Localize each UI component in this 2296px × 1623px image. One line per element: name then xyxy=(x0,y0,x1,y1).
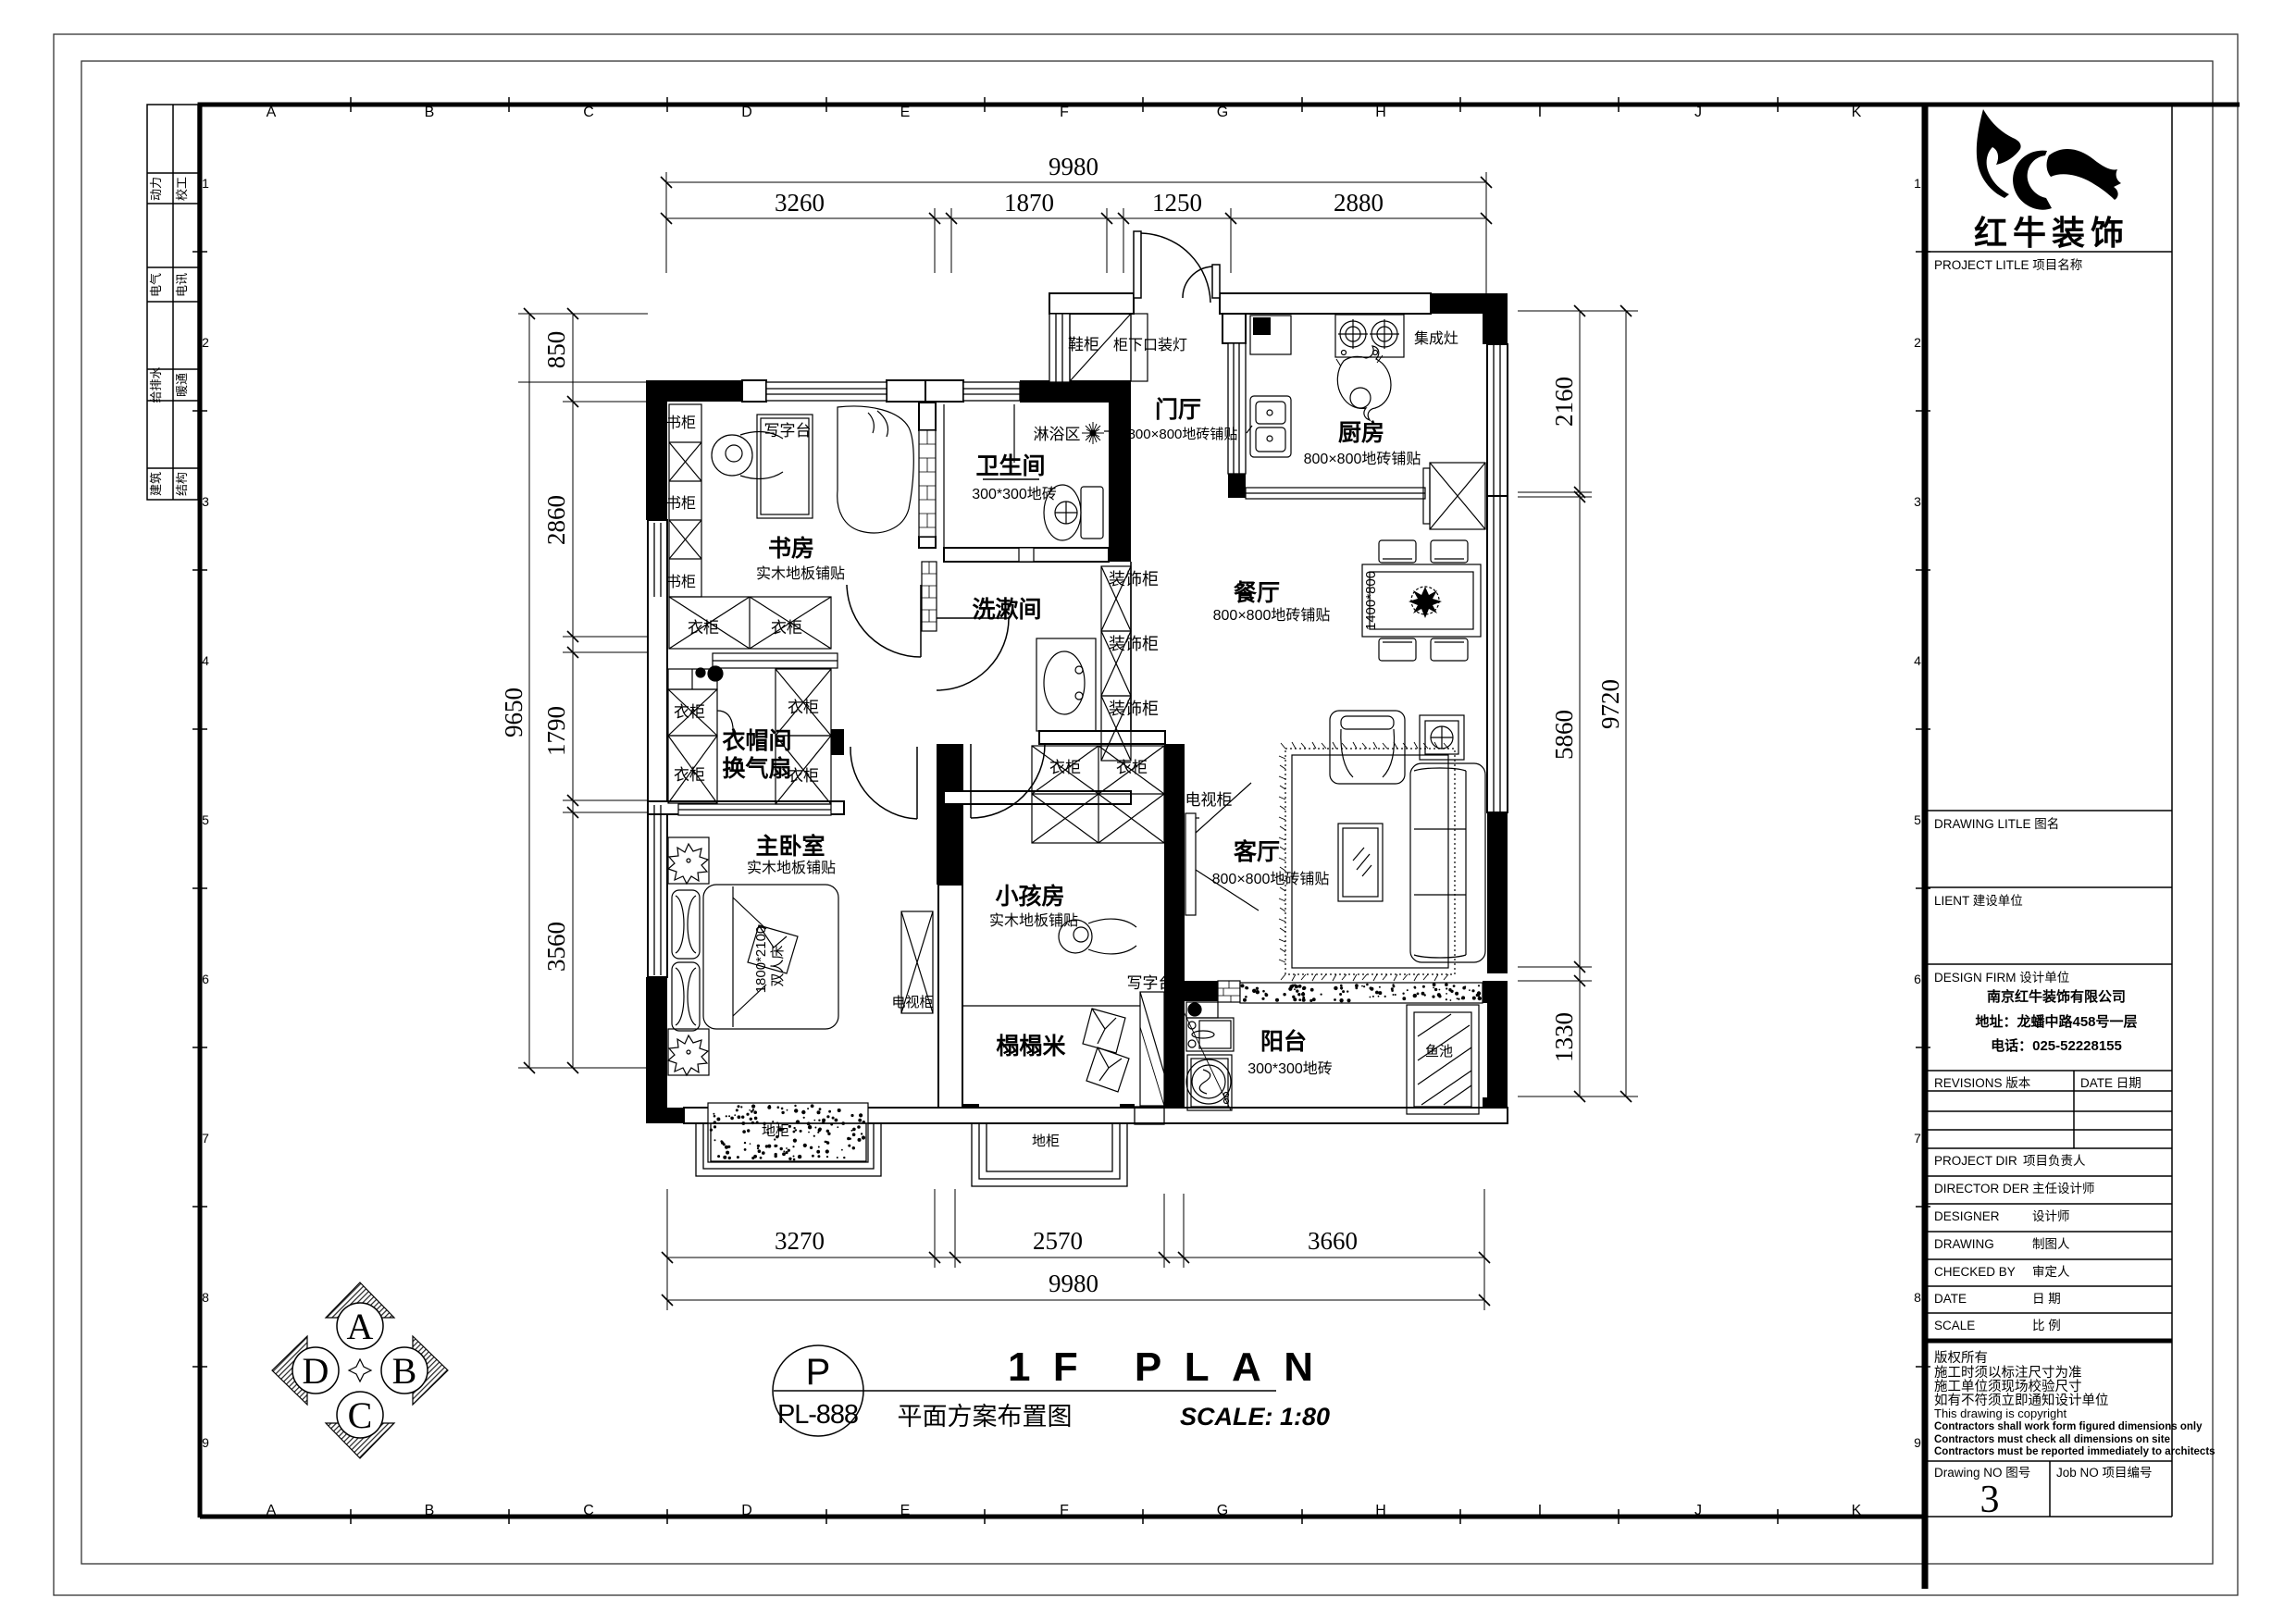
svg-text:800×800地砖铺贴: 800×800地砖铺贴 xyxy=(1128,427,1238,442)
svg-text:1790: 1790 xyxy=(542,706,570,756)
svg-text:CHECKED BY: CHECKED BY xyxy=(1934,1265,2016,1279)
svg-text:D: D xyxy=(741,105,752,120)
svg-text:DATE 日期: DATE 日期 xyxy=(2080,1076,2141,1090)
svg-text:800×800地砖铺贴: 800×800地砖铺贴 xyxy=(1213,607,1331,624)
svg-text:地址：龙蟠中路458号一层: 地址：龙蟠中路458号一层 xyxy=(1975,1013,2137,1030)
svg-text:主卧室: 主卧室 xyxy=(755,833,825,860)
svg-text:Contractors must check all dim: Contractors must check all dimensions on… xyxy=(1934,1434,2170,1445)
svg-text:南京红牛装饰有限公司: 南京红牛装饰有限公司 xyxy=(1987,988,2126,1005)
svg-text:C: C xyxy=(348,1394,373,1436)
svg-text:Contractors shall work form fi: Contractors shall work form figured dime… xyxy=(1934,1421,2203,1432)
svg-text:8: 8 xyxy=(1914,1290,1921,1305)
svg-text:1: 1 xyxy=(202,176,209,191)
svg-text:柜下口装灯: 柜下口装灯 xyxy=(1113,337,1187,353)
svg-text:书柜: 书柜 xyxy=(666,574,696,590)
svg-text:5: 5 xyxy=(1914,812,1921,827)
svg-text:F: F xyxy=(1060,105,1069,120)
svg-text:3: 3 xyxy=(1914,494,1921,509)
svg-text:施工时须以标注尺寸为准: 施工时须以标注尺寸为准 xyxy=(1934,1365,2082,1381)
svg-text:小孩房: 小孩房 xyxy=(995,883,1064,910)
svg-text:淋浴区: 淋浴区 xyxy=(1034,426,1081,443)
svg-text:SCALE: 1:80: SCALE: 1:80 xyxy=(1180,1403,1330,1431)
svg-text:300*300地砖: 300*300地砖 xyxy=(1247,1060,1333,1077)
svg-text:DATE: DATE xyxy=(1934,1292,1967,1306)
svg-text:DRAWING: DRAWING xyxy=(1934,1237,1994,1251)
svg-text:双人床: 双人床 xyxy=(770,945,786,986)
svg-text:厨房: 厨房 xyxy=(1338,419,1384,446)
svg-text:装饰柜: 装饰柜 xyxy=(1109,635,1159,653)
svg-text:动力: 动力 xyxy=(149,177,163,201)
svg-text:洗漱间: 洗漱间 xyxy=(972,597,1041,623)
svg-text:衣帽间: 衣帽间 xyxy=(722,727,791,754)
svg-text:鞋柜: 鞋柜 xyxy=(1068,336,1099,353)
svg-text:Contractors must be reported i: Contractors must be reported immediately… xyxy=(1934,1446,2215,1457)
svg-text:电视柜: 电视柜 xyxy=(891,995,933,1010)
svg-text:G: G xyxy=(1217,105,1228,120)
svg-text:3560: 3560 xyxy=(542,922,570,972)
svg-text:E: E xyxy=(900,1503,911,1518)
svg-text:装饰柜: 装饰柜 xyxy=(1109,700,1159,718)
svg-text:DIRECTOR DER: DIRECTOR DER xyxy=(1934,1182,2029,1196)
svg-text:I: I xyxy=(1538,105,1542,120)
svg-text:衣柜: 衣柜 xyxy=(1049,759,1081,776)
svg-text:LIENT 建设单位: LIENT 建设单位 xyxy=(1934,894,2023,908)
svg-text:PROJECT LITLE 项目名称: PROJECT LITLE 项目名称 xyxy=(1934,258,2082,272)
svg-text:换气扇: 换气扇 xyxy=(722,755,791,782)
svg-text:写字台: 写字台 xyxy=(1127,974,1174,992)
svg-text:衣柜: 衣柜 xyxy=(771,619,802,637)
svg-text:3660: 3660 xyxy=(1308,1227,1358,1255)
svg-text:I: I xyxy=(1538,1503,1542,1518)
svg-text:DESIGNER: DESIGNER xyxy=(1934,1209,2000,1223)
svg-text:电话：025-52228155: 电话：025-52228155 xyxy=(1991,1037,2122,1054)
svg-text:卫生间: 卫生间 xyxy=(975,453,1045,479)
svg-text:5860: 5860 xyxy=(1550,710,1578,760)
svg-text:1800*2100: 1800*2100 xyxy=(753,926,769,994)
svg-text:9: 9 xyxy=(1914,1435,1921,1450)
svg-text:J: J xyxy=(1694,1503,1702,1518)
svg-text:A: A xyxy=(347,1306,374,1347)
svg-text:2880: 2880 xyxy=(1334,189,1384,217)
svg-text:鱼池: 鱼池 xyxy=(1425,1043,1453,1059)
svg-text:榻榻米: 榻榻米 xyxy=(996,1034,1066,1059)
svg-text:实木地板铺贴: 实木地板铺贴 xyxy=(989,912,1078,929)
svg-text:衣柜: 衣柜 xyxy=(674,766,705,784)
svg-text:B: B xyxy=(392,1350,417,1392)
svg-text:8: 8 xyxy=(202,1290,209,1305)
svg-text:衣柜: 衣柜 xyxy=(1116,759,1148,776)
svg-text:800×800地砖铺贴: 800×800地砖铺贴 xyxy=(1304,451,1421,467)
svg-text:实木地板铺贴: 实木地板铺贴 xyxy=(747,860,836,876)
svg-text:9720: 9720 xyxy=(1596,679,1624,729)
svg-text:A: A xyxy=(267,1503,277,1518)
svg-text:设计师: 设计师 xyxy=(2032,1209,2070,1223)
svg-text:D: D xyxy=(741,1503,752,1518)
svg-text:建筑: 建筑 xyxy=(149,472,163,496)
svg-text:校工: 校工 xyxy=(175,177,189,201)
svg-text:K: K xyxy=(1852,1503,1862,1518)
svg-text:3: 3 xyxy=(202,494,209,509)
svg-text:4: 4 xyxy=(1914,653,1921,668)
svg-text:写字台: 写字台 xyxy=(764,422,812,440)
svg-text:7: 7 xyxy=(202,1131,209,1146)
svg-text:衣柜: 衣柜 xyxy=(788,699,819,716)
svg-text:E: E xyxy=(900,105,911,120)
svg-text:7: 7 xyxy=(1914,1131,1921,1146)
svg-text:DESIGN FIRM 设计单位: DESIGN FIRM 设计单位 xyxy=(1934,971,2069,985)
svg-text:餐厅: 餐厅 xyxy=(1234,580,1280,606)
svg-text:制图人: 制图人 xyxy=(2032,1237,2070,1251)
svg-text:P: P xyxy=(806,1352,831,1393)
svg-text:J: J xyxy=(1694,105,1702,120)
svg-text:项目负责人: 项目负责人 xyxy=(2023,1154,2086,1168)
svg-text:集成灶: 集成灶 xyxy=(1414,330,1458,347)
svg-text:B: B xyxy=(425,1503,435,1518)
svg-text:9980: 9980 xyxy=(1049,153,1098,180)
svg-text:书柜: 书柜 xyxy=(666,415,696,431)
svg-text:电气: 电气 xyxy=(149,273,163,297)
svg-text:1330: 1330 xyxy=(1550,1012,1578,1062)
svg-text:2: 2 xyxy=(202,335,209,350)
svg-text:K: K xyxy=(1852,105,1862,120)
svg-text:5: 5 xyxy=(202,812,209,827)
svg-text:3260: 3260 xyxy=(775,189,825,217)
svg-text:装饰柜: 装饰柜 xyxy=(1109,570,1159,588)
svg-text:DRAWING LITLE 图名: DRAWING LITLE 图名 xyxy=(1934,817,2059,831)
svg-text:H: H xyxy=(1375,105,1386,120)
svg-text:A: A xyxy=(267,105,277,120)
svg-text:1: 1 xyxy=(1914,176,1921,191)
svg-text:电讯: 电讯 xyxy=(175,273,189,297)
svg-text:PROJECT DIR: PROJECT DIR xyxy=(1934,1154,2017,1168)
svg-text:PL-888: PL-888 xyxy=(777,1400,859,1430)
svg-text:H: H xyxy=(1375,1503,1386,1518)
svg-text:给排水: 给排水 xyxy=(149,366,163,403)
svg-text:2160: 2160 xyxy=(1550,377,1578,427)
svg-text:2860: 2860 xyxy=(542,495,570,545)
svg-text:C: C xyxy=(583,105,594,120)
svg-text:地柜: 地柜 xyxy=(762,1123,789,1139)
svg-text:红牛装饰: 红牛装饰 xyxy=(1974,214,2129,252)
svg-text:SCALE: SCALE xyxy=(1934,1319,1975,1332)
svg-text:实木地板铺贴: 实木地板铺贴 xyxy=(756,565,845,582)
svg-text:日 期: 日 期 xyxy=(2032,1292,2061,1306)
svg-text:Job NO 项目编号: Job NO 项目编号 xyxy=(2056,1466,2153,1480)
svg-text:9650: 9650 xyxy=(500,688,527,737)
svg-text:2570: 2570 xyxy=(1033,1227,1083,1255)
svg-text:主任设计师: 主任设计师 xyxy=(2032,1182,2095,1196)
svg-text:300*300地砖: 300*300地砖 xyxy=(972,486,1057,502)
svg-text:版权所有: 版权所有 xyxy=(1934,1350,1988,1366)
svg-text:D: D xyxy=(303,1350,329,1392)
svg-text:衣柜: 衣柜 xyxy=(674,703,705,721)
svg-text:9: 9 xyxy=(202,1435,209,1450)
svg-text:暖通: 暖通 xyxy=(175,373,189,397)
svg-text:1250: 1250 xyxy=(1152,189,1202,217)
svg-text:1870: 1870 xyxy=(1004,189,1054,217)
svg-text:G: G xyxy=(1217,1503,1228,1518)
svg-text:平面方案布置图: 平面方案布置图 xyxy=(898,1403,1073,1431)
svg-text:3270: 3270 xyxy=(775,1227,825,1255)
svg-text:REVISIONS 版本: REVISIONS 版本 xyxy=(1934,1076,2031,1090)
svg-text:地柜: 地柜 xyxy=(1032,1134,1060,1149)
svg-text:书柜: 书柜 xyxy=(666,495,696,512)
svg-text:800×800地砖铺贴: 800×800地砖铺贴 xyxy=(1212,871,1330,887)
svg-text:衣柜: 衣柜 xyxy=(788,767,819,785)
svg-text:Drawing NO 图号: Drawing NO 图号 xyxy=(1934,1466,2030,1480)
svg-text:850: 850 xyxy=(542,331,570,369)
svg-text:6: 6 xyxy=(202,972,209,986)
svg-text:阳台: 阳台 xyxy=(1260,1028,1307,1055)
svg-text:6: 6 xyxy=(1914,972,1921,986)
svg-text:2: 2 xyxy=(1914,335,1921,350)
svg-text:3: 3 xyxy=(1980,1479,2000,1521)
svg-text:审定人: 审定人 xyxy=(2032,1265,2070,1279)
svg-text:门厅: 门厅 xyxy=(1155,396,1201,423)
svg-text:1400*800: 1400*800 xyxy=(1363,571,1379,630)
svg-text:结构: 结构 xyxy=(175,472,189,496)
svg-text:This drawing is copyright: This drawing is copyright xyxy=(1934,1406,2066,1420)
svg-text:施工单位须现场校验尺寸: 施工单位须现场校验尺寸 xyxy=(1934,1379,2082,1394)
svg-text:4: 4 xyxy=(202,653,209,668)
svg-text:C: C xyxy=(583,1503,594,1518)
svg-text:F: F xyxy=(1060,1503,1069,1518)
svg-text:书房: 书房 xyxy=(768,535,814,562)
svg-text:B: B xyxy=(425,105,435,120)
svg-text:电视柜: 电视柜 xyxy=(1185,791,1233,809)
svg-text:9980: 9980 xyxy=(1049,1270,1098,1297)
svg-text:衣柜: 衣柜 xyxy=(688,619,719,637)
svg-text:比 例: 比 例 xyxy=(2032,1319,2061,1332)
svg-text:客厅: 客厅 xyxy=(1234,838,1280,865)
